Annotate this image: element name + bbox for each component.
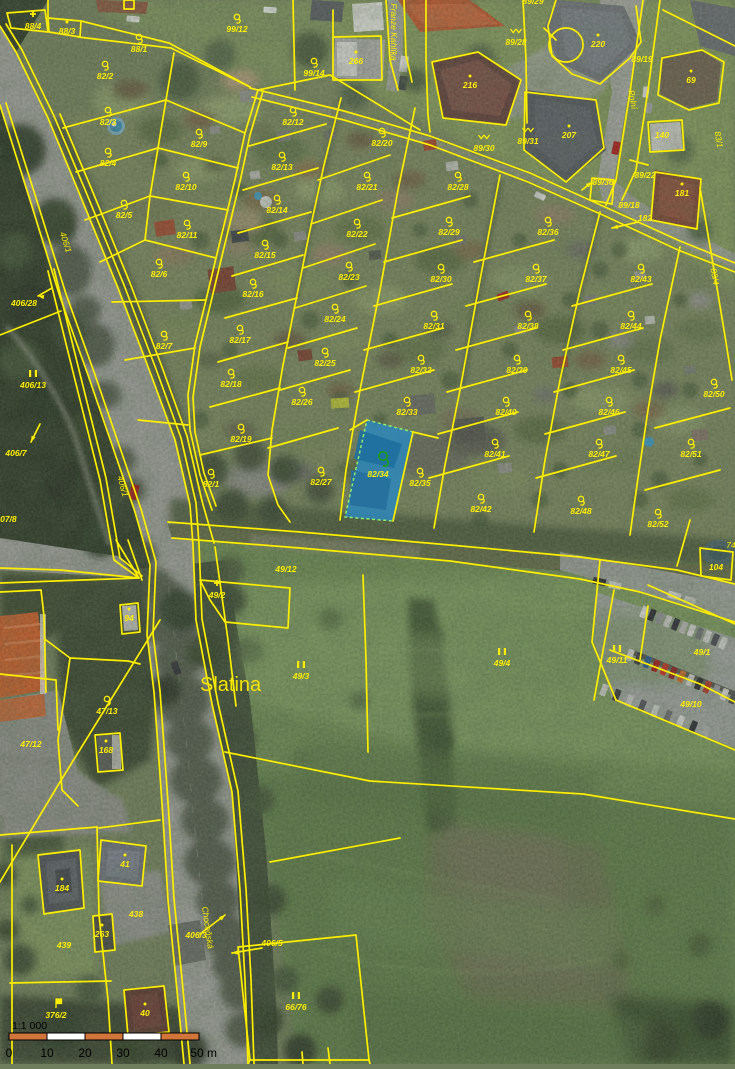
svg-text:82/1: 82/1 bbox=[203, 479, 220, 489]
svg-text:30: 30 bbox=[116, 1046, 130, 1060]
svg-text:82/27: 82/27 bbox=[310, 477, 333, 487]
svg-text:0: 0 bbox=[6, 1046, 13, 1060]
svg-text:89/36: 89/36 bbox=[592, 177, 614, 187]
svg-text:82/52: 82/52 bbox=[647, 519, 669, 529]
svg-text:40: 40 bbox=[139, 1008, 150, 1018]
svg-text:94: 94 bbox=[124, 613, 134, 623]
svg-text:49/10: 49/10 bbox=[679, 699, 702, 709]
svg-text:82/44: 82/44 bbox=[620, 321, 642, 331]
svg-text:82/47: 82/47 bbox=[588, 449, 611, 459]
svg-text:439: 439 bbox=[56, 940, 71, 950]
svg-text:82/12: 82/12 bbox=[282, 117, 304, 127]
svg-text:99/14: 99/14 bbox=[303, 68, 325, 78]
svg-text:20: 20 bbox=[78, 1046, 92, 1060]
svg-text:82/38: 82/38 bbox=[517, 321, 539, 331]
svg-text:82/10: 82/10 bbox=[175, 182, 197, 192]
svg-text:168: 168 bbox=[99, 745, 113, 755]
svg-text:99/12: 99/12 bbox=[226, 24, 248, 34]
svg-text:82/24: 82/24 bbox=[324, 314, 346, 324]
svg-text:82/9: 82/9 bbox=[191, 139, 208, 149]
svg-text:49/3: 49/3 bbox=[292, 671, 310, 681]
svg-text:82/17: 82/17 bbox=[229, 335, 252, 345]
svg-text:82/14: 82/14 bbox=[266, 205, 288, 215]
svg-text:82/30: 82/30 bbox=[430, 274, 452, 284]
svg-text:82/46: 82/46 bbox=[598, 407, 620, 417]
svg-text:82/39: 82/39 bbox=[506, 365, 528, 375]
svg-text:88/3: 88/3 bbox=[59, 26, 76, 36]
svg-text:88/4: 88/4 bbox=[25, 21, 42, 31]
svg-text:47/13: 47/13 bbox=[95, 706, 118, 716]
svg-text:82/11: 82/11 bbox=[177, 230, 198, 240]
svg-text:49/11: 49/11 bbox=[606, 655, 628, 665]
svg-text:376/2: 376/2 bbox=[45, 1010, 67, 1020]
svg-text:82/33: 82/33 bbox=[396, 407, 418, 417]
svg-text:82/41: 82/41 bbox=[484, 449, 506, 459]
svg-text:82/25: 82/25 bbox=[314, 358, 336, 368]
svg-text:438: 438 bbox=[128, 909, 143, 919]
svg-text:266: 266 bbox=[348, 56, 363, 66]
svg-text:82/7: 82/7 bbox=[156, 341, 174, 351]
svg-text:89/19: 89/19 bbox=[631, 54, 653, 64]
svg-text:1:1 000: 1:1 000 bbox=[12, 1020, 47, 1032]
svg-text:82/51: 82/51 bbox=[680, 449, 702, 459]
svg-text:49/4: 49/4 bbox=[493, 658, 511, 668]
svg-text:216: 216 bbox=[462, 80, 477, 90]
svg-text:82/48: 82/48 bbox=[570, 506, 592, 516]
svg-text:82/35: 82/35 bbox=[409, 478, 431, 488]
svg-text:89/31: 89/31 bbox=[517, 136, 539, 146]
svg-text:49/2: 49/2 bbox=[208, 590, 226, 600]
svg-text:406/5: 406/5 bbox=[260, 938, 283, 948]
svg-text:82/3: 82/3 bbox=[100, 117, 117, 127]
svg-text:69: 69 bbox=[686, 75, 696, 85]
svg-text:89/30: 89/30 bbox=[473, 143, 495, 153]
svg-text:82/6: 82/6 bbox=[151, 269, 168, 279]
svg-text:50: 50 bbox=[190, 1046, 204, 1060]
svg-text:89/28: 89/28 bbox=[505, 37, 527, 47]
svg-text:207: 207 bbox=[561, 130, 577, 140]
svg-text:263: 263 bbox=[94, 929, 109, 939]
svg-text:88/1: 88/1 bbox=[131, 44, 148, 54]
svg-text:82/22: 82/22 bbox=[346, 229, 368, 239]
svg-text:140: 140 bbox=[655, 130, 669, 140]
svg-text:49/12: 49/12 bbox=[274, 564, 297, 574]
svg-text:49/1: 49/1 bbox=[693, 647, 711, 657]
svg-text:82/20: 82/20 bbox=[371, 138, 393, 148]
svg-text:82/42: 82/42 bbox=[470, 504, 492, 514]
svg-text:Slatina: Slatina bbox=[200, 674, 262, 696]
svg-text:82/15: 82/15 bbox=[254, 250, 276, 260]
svg-text:82/45: 82/45 bbox=[610, 365, 632, 375]
svg-text:89/18: 89/18 bbox=[618, 200, 640, 210]
svg-text:82/26: 82/26 bbox=[291, 397, 313, 407]
svg-text:41: 41 bbox=[119, 859, 130, 869]
svg-text:82/28: 82/28 bbox=[447, 182, 469, 192]
svg-text:82/34: 82/34 bbox=[367, 469, 389, 479]
svg-text:82/23: 82/23 bbox=[338, 272, 360, 282]
svg-text:47/12: 47/12 bbox=[19, 739, 42, 749]
svg-text:82/50: 82/50 bbox=[703, 389, 725, 399]
svg-text:82/40: 82/40 bbox=[495, 407, 517, 417]
svg-text:m: m bbox=[207, 1046, 217, 1060]
svg-text:89/22: 89/22 bbox=[634, 170, 656, 180]
svg-text:82/36: 82/36 bbox=[537, 227, 559, 237]
svg-text:74: 74 bbox=[726, 540, 735, 550]
svg-text:406/13: 406/13 bbox=[19, 380, 46, 390]
svg-text:82/32: 82/32 bbox=[410, 365, 432, 375]
svg-text:82/29: 82/29 bbox=[438, 227, 460, 237]
svg-text:10: 10 bbox=[40, 1046, 54, 1060]
svg-text:181: 181 bbox=[675, 188, 689, 198]
svg-text:104: 104 bbox=[709, 562, 723, 572]
svg-text:82/13: 82/13 bbox=[271, 162, 293, 172]
svg-text:406/7: 406/7 bbox=[4, 448, 28, 458]
svg-text:Franze Kahlíka: Franze Kahlíka bbox=[389, 3, 399, 60]
svg-text:82/31: 82/31 bbox=[423, 321, 445, 331]
svg-text:82/19: 82/19 bbox=[230, 434, 252, 444]
svg-text:184: 184 bbox=[55, 883, 69, 893]
svg-text:40: 40 bbox=[154, 1046, 168, 1060]
svg-text:82/16: 82/16 bbox=[242, 289, 264, 299]
svg-text:406/28: 406/28 bbox=[10, 298, 37, 308]
svg-text:82/21: 82/21 bbox=[356, 182, 378, 192]
svg-text:66/76: 66/76 bbox=[285, 1002, 307, 1012]
svg-text:82/18: 82/18 bbox=[220, 379, 242, 389]
svg-text:82/43: 82/43 bbox=[630, 274, 652, 284]
svg-text:407/8: 407/8 bbox=[0, 514, 17, 524]
svg-text:82/4: 82/4 bbox=[100, 158, 117, 168]
svg-text:220: 220 bbox=[590, 39, 605, 49]
svg-text:82/5: 82/5 bbox=[116, 210, 133, 220]
svg-text:82/2: 82/2 bbox=[97, 71, 114, 81]
svg-text:182: 182 bbox=[638, 213, 652, 223]
svg-text:89/29: 89/29 bbox=[522, 0, 544, 6]
svg-text:82/37: 82/37 bbox=[525, 274, 548, 284]
